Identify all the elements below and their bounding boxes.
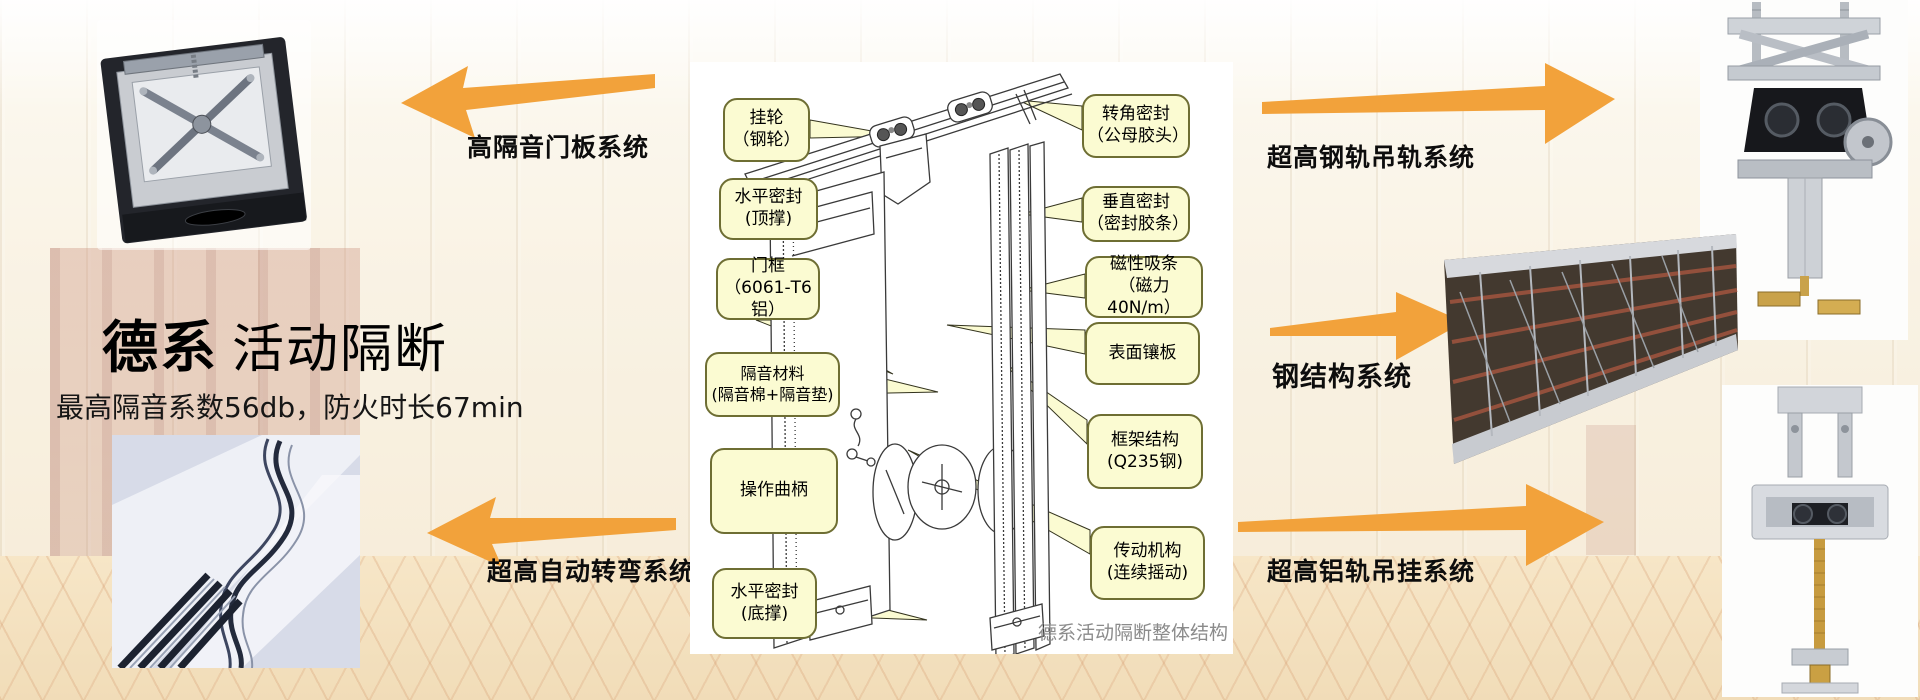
callout-operating-crank: 操作曲柄 xyxy=(710,448,838,534)
diagram-caption: 德系活动隔断整体结构 xyxy=(1038,618,1228,645)
label-auto-turn-system: 超高自动转弯系统 xyxy=(487,552,695,588)
page-subtitle: 最高隔音系数56db，防火时长67min xyxy=(56,386,524,426)
photo-door-panel-mechanism xyxy=(95,12,315,257)
callout-corner-seal: 转角密封 （公母胶头） xyxy=(1082,94,1190,158)
label-door-panel-system: 高隔音门板系统 xyxy=(467,128,649,164)
page-title-bold: 德系 xyxy=(102,316,218,381)
partition-structure-diagram: 挂轮 （钢轮） 水平密封 (顶撑) 门框 （6061-T6铝） 隔音材料 (隔音… xyxy=(690,62,1233,654)
photo-alu-track-hanger xyxy=(1722,385,1918,697)
page-title-rest: 活动隔断 xyxy=(232,320,448,380)
photo-steel-structure-truss xyxy=(1440,232,1740,470)
photo-auto-turn-rails xyxy=(112,435,360,668)
label-alu-rail-system: 超高铝轨吊挂系统 xyxy=(1267,552,1475,588)
callout-horizontal-seal-bottom: 水平密封 (底撑) xyxy=(712,568,817,639)
callout-vertical-seal: 垂直密封 （密封胶条） xyxy=(1082,186,1190,242)
callout-sound-insulation: 隔音材料 (隔音棉+隔音垫) xyxy=(705,352,840,417)
roller-assembly-2 xyxy=(946,90,995,124)
label-steel-rail-system: 超高钢轨吊轨系统 xyxy=(1267,138,1475,174)
slide: 高隔音门板系统 德系活动隔断 最高隔音系数56db，防火时长67min 超高自动… xyxy=(0,0,1920,700)
callout-horizontal-seal-top: 水平密封 (顶撑) xyxy=(719,178,818,240)
callout-hanging-wheel: 挂轮 （钢轮） xyxy=(723,98,810,162)
page-title: 德系活动隔断 xyxy=(102,303,448,384)
callout-door-frame: 门框 （6061-T6铝） xyxy=(716,258,820,320)
callout-frame-structure: 框架结构 (Q235钢) xyxy=(1087,414,1203,489)
label-steel-structure-system: 钢结构系统 xyxy=(1272,355,1412,394)
callout-drive-mechanism: 传动机构 (连续摇动) xyxy=(1090,526,1205,600)
callout-surface-panel: 表面镶板 xyxy=(1085,322,1200,385)
arrow-steel-rail-system xyxy=(1260,58,1620,150)
callout-magnetic-strip: 磁性吸条 （磁力40N/m） xyxy=(1085,256,1203,318)
